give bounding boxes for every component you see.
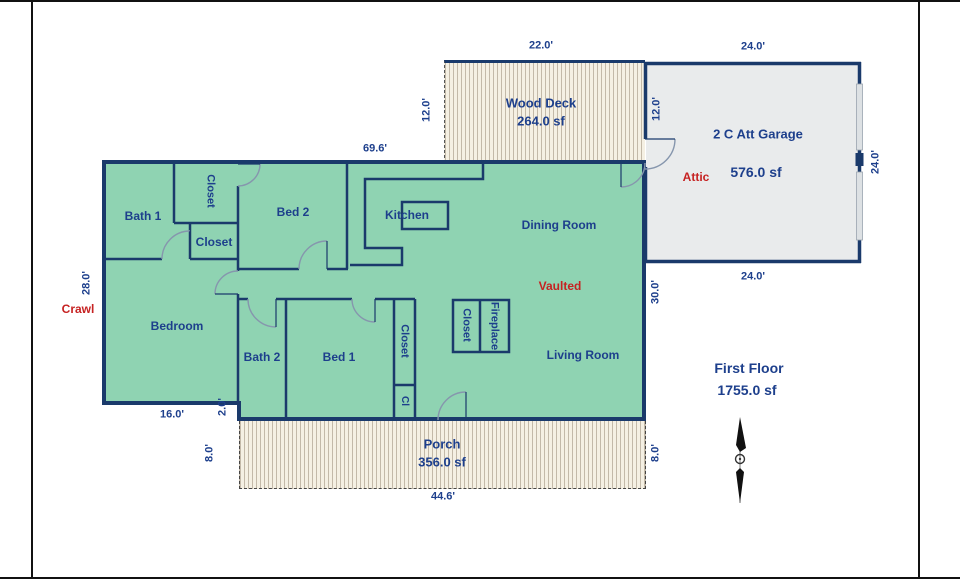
first-floor-area-label: 1755.0 sf [717,383,776,397]
annotation-vaulted: Vaulted [539,280,582,292]
annotation-crawl: Crawl [62,303,95,315]
room-label-closet-mid: Closet [196,236,233,248]
deck-area-label: 264.0 sf [517,115,565,128]
garage-area-label: 576.0 sf [730,165,781,179]
room-label-bed1: Bed 1 [323,351,356,363]
deck-name-label: Wood Deck [506,97,577,110]
garage-window [857,84,863,150]
dim-garage-width-top: 24.0' [741,42,765,53]
porch-name-label: Porch [424,438,461,451]
dim-deck-depth-left: 12.0' [422,98,433,122]
room-label-living-closet: Closet [461,308,472,342]
floor-plan-page: 22.0' 24.0' 12.0' 12.0' 24.0' 24.0' 69.6… [0,0,960,579]
dim-step-depth: 2.0' [218,398,229,416]
room-label-closet-top: Closet [205,174,216,208]
first-floor-label: First Floor [714,361,783,375]
garage-outline [645,62,864,263]
room-label-bath1: Bath 1 [125,210,162,222]
room-label-bed1-closet-small: Cl [399,396,409,406]
dim-house-depth-right: 30.0' [651,280,662,304]
dim-deck-width: 22.0' [529,41,553,52]
dim-garage-depth-right: 24.0' [871,150,882,174]
garage-name-label: 2 C Att Garage [713,128,803,141]
dim-bedroom-width: 16.0' [160,410,184,421]
room-label-bedroom: Bedroom [151,320,204,332]
dim-deck-depth-right: 12.0' [652,97,663,121]
porch-area-label: 356.0 sf [418,456,466,469]
room-label-bed2: Bed 2 [277,206,310,218]
room-label-dining-room: Dining Room [522,219,597,231]
room-label-kitchen: Kitchen [385,209,429,221]
dim-house-depth-left: 28.0' [82,271,93,295]
door-arc-garage [645,139,675,169]
dim-house-width-top: 69.6' [363,144,387,155]
dim-porch-width: 44.6' [431,492,455,503]
garage-window [857,172,863,240]
room-label-bath2: Bath 2 [244,351,281,363]
room-label-fireplace: Fireplace [489,302,500,350]
room-label-bed1-closet: Closet [399,324,410,358]
north-arrow-icon [736,417,747,503]
dim-garage-width-bottom: 24.0' [741,272,765,283]
annotation-attic: Attic [683,171,710,183]
dim-porch-depth-right: 8.0' [651,444,662,462]
floor-plan-drawing [0,0,960,579]
room-label-living-room: Living Room [547,349,620,361]
dim-porch-depth-left: 8.0' [205,444,216,462]
wall-tick [856,153,864,166]
